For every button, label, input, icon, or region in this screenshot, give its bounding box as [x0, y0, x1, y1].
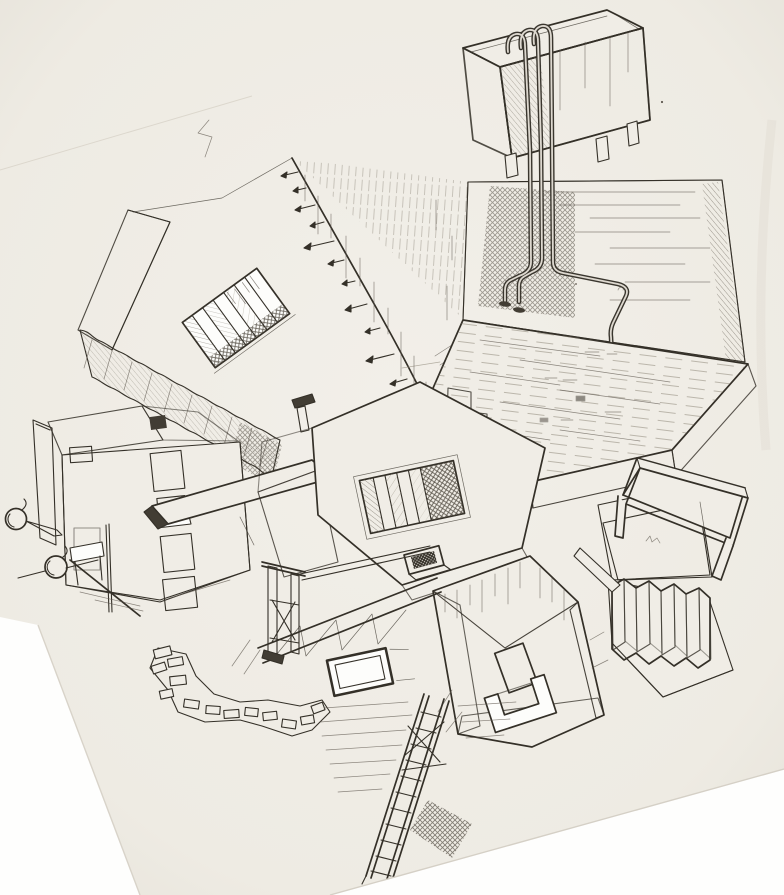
sketch-drawing: Hand-drawn pencil and ink architectural … [0, 0, 784, 895]
scanned-sketch-page: Hand-drawn pencil and ink architectural … [0, 0, 784, 895]
